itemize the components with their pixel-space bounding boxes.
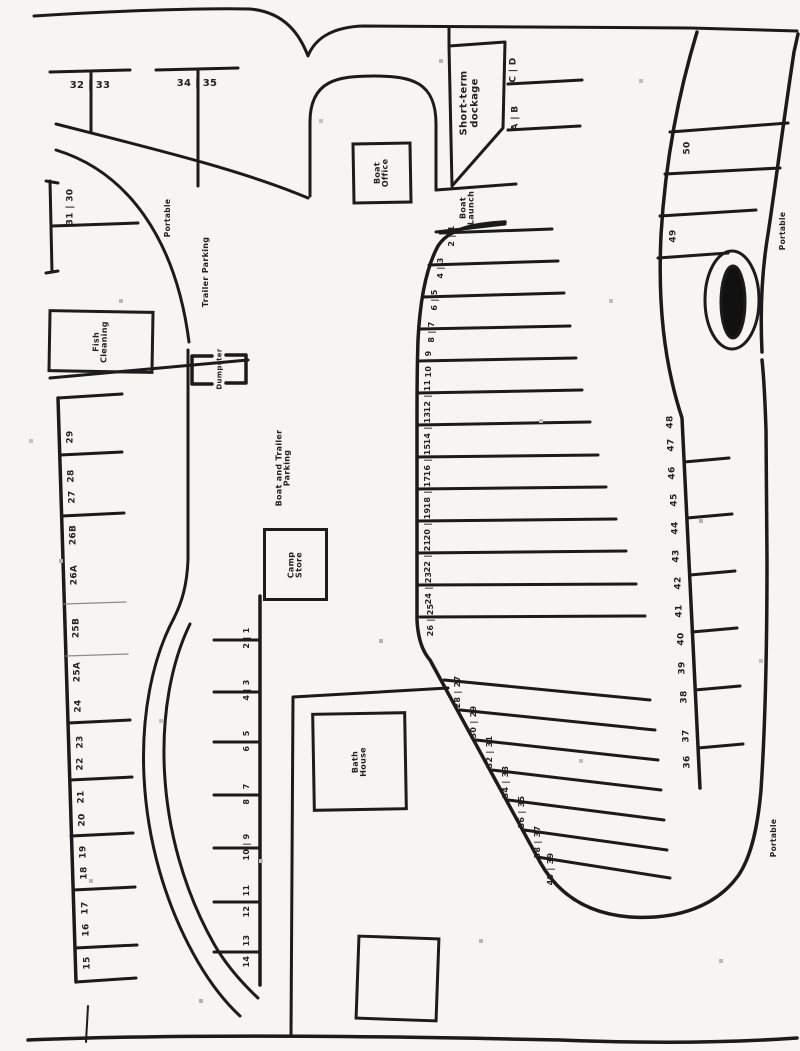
slip-label-left: 16	[82, 923, 91, 936]
slip-label-left: 24	[74, 699, 83, 712]
crescent-outer	[144, 618, 240, 1016]
finger-pier-west	[460, 710, 655, 730]
slip-label-west-dock: 24 | 23	[425, 572, 433, 605]
finger-pier-west	[508, 800, 664, 820]
camp-store-box: Camp Store	[263, 528, 328, 601]
finger-pier-left	[71, 833, 133, 836]
slip-label-east-top: 49	[669, 229, 678, 242]
finger-pier-east	[690, 571, 735, 575]
slip-label-east: 48	[666, 415, 675, 428]
finger-pier-eastTop	[665, 168, 780, 174]
slip-label-west-dock: 32 | 31	[486, 736, 494, 769]
outer-shoreline-upper	[761, 34, 798, 352]
finger-pier-left	[73, 887, 135, 890]
finger-pier-west	[417, 519, 616, 521]
slip-label-east: 46	[668, 466, 677, 479]
slip-label-west-dock: 22 | 21	[424, 540, 432, 573]
slip-label-left: 25B	[72, 618, 81, 638]
finger-pier-west	[429, 261, 558, 265]
finger-pier-eastTop	[660, 210, 756, 216]
finger-pier-west	[537, 857, 670, 878]
slip-label-left: 25A	[73, 662, 82, 682]
slip-label-left: 23	[76, 735, 85, 748]
portable-label-top-left: Portable	[164, 199, 172, 237]
boundary-bottom	[28, 1036, 797, 1042]
slip-label-east-top: 50	[683, 141, 692, 154]
slip-label-left: 29	[66, 430, 75, 443]
slip-label-left: 18	[80, 866, 89, 879]
slip-label-east: 41	[675, 604, 684, 617]
camp-store-label: Camp Store	[287, 547, 304, 583]
finger-pier-west	[417, 455, 598, 457]
portable-label-top-right: Portable	[779, 212, 787, 250]
dock-30-31-label: 31 | 30	[66, 189, 75, 226]
scanned-marina-map-page: Boat Office Fish Cleaning Camp Store Bat…	[0, 0, 800, 1051]
slip-label-west-dock: 10 | 9	[425, 351, 433, 378]
slip-label-short-term: C | D	[509, 57, 518, 82]
parking-divider	[174, 350, 188, 618]
bath-house-label: Bath House	[351, 743, 368, 779]
slip-label-left: 28	[67, 469, 76, 482]
slip-label-left: 20	[78, 813, 87, 826]
slip-label-west-dock: 26 | 25	[427, 604, 435, 637]
portable-label-bottom-right: Portable	[770, 819, 778, 857]
t-dock-2-label: 34 | 35	[177, 79, 218, 90]
slip-label-west-dock: 34 | 33	[502, 766, 510, 799]
west-dock-spine	[417, 222, 540, 862]
finger-pier-west	[418, 358, 576, 361]
dumpster-label: Dumpster	[216, 348, 223, 389]
boat-launch-label: Boat Launch	[460, 188, 477, 228]
slip-label-middle-dock: 6 | 5	[243, 730, 251, 751]
slip-label-east: 47	[667, 438, 676, 451]
slip-label-east: 45	[670, 493, 679, 506]
finger-pier-left	[64, 602, 126, 604]
finger-pier-left	[58, 394, 122, 398]
slip-label-west-dock: 18 | 17	[424, 476, 432, 509]
finger-pier-left	[62, 513, 124, 516]
boundary-top	[34, 9, 797, 56]
slip-label-west-dock: 2 | 1	[448, 225, 456, 246]
finger-pier-west	[417, 390, 582, 393]
slip-label-middle-dock: 8 | 7	[243, 783, 251, 804]
finger-pier-west	[423, 293, 564, 297]
basin-bottom-shore	[540, 360, 767, 917]
slip-label-west-dock: 36 | 35	[518, 796, 526, 829]
road-curve-upper	[56, 124, 308, 198]
fish-cleaning-box: Fish Cleaning	[47, 309, 154, 374]
bath-house-box: Bath House	[311, 711, 408, 812]
utility-box	[355, 935, 441, 1023]
finger-pier-east	[687, 514, 732, 518]
slip-label-left: 22	[76, 757, 85, 770]
finger-pier-west	[418, 584, 636, 585]
slip-label-short-term: A | B	[511, 106, 520, 131]
finger-pier-west	[492, 770, 661, 790]
slip-label-west-dock: 16 | 15	[424, 444, 432, 477]
slip-label-west-dock: 14 | 13	[424, 412, 432, 445]
finger-pier-west	[524, 830, 667, 850]
finger-pier-left	[68, 720, 130, 723]
slip-label-west-dock: 6 | 5	[431, 289, 439, 310]
finger-pier-west	[444, 680, 650, 700]
finger-pier-left	[60, 452, 122, 455]
finger-pier-west	[476, 740, 658, 760]
finger-pier-left	[76, 978, 136, 982]
slip-label-west-dock: 12 | 11	[424, 380, 432, 413]
turn-oval-fill	[721, 266, 745, 338]
slip-label-east: 44	[671, 521, 680, 534]
slip-label-east: 40	[677, 632, 686, 645]
slip-label-left: 27	[68, 490, 77, 503]
finger-pier-west	[417, 422, 590, 425]
finger-pier-west	[417, 487, 606, 489]
slip-label-east: 38	[680, 690, 689, 703]
slip-label-west-dock: 20 | 19	[424, 508, 432, 541]
slip-label-west-dock: 8 | 7	[428, 321, 436, 342]
boat-office-label: Boat Office	[373, 153, 390, 193]
slip-label-west-dock: 4 | 3	[437, 257, 445, 278]
slip-label-left: 15	[83, 956, 92, 969]
finger-pier-eastTop	[670, 123, 788, 132]
slip-label-left: 26A	[70, 565, 79, 585]
fish-cleaning-label: Fish Cleaning	[92, 317, 110, 365]
slip-label-middle-dock: 12 | 11	[243, 885, 251, 918]
slip-label-left: 21	[77, 790, 86, 803]
slip-label-west-dock: 30 | 29	[470, 706, 478, 739]
east-inner-line	[660, 32, 700, 788]
finger-pier-left	[75, 945, 137, 948]
finger-pier-east	[692, 628, 737, 632]
boat-office-box: Boat Office	[351, 141, 412, 204]
slip-label-middle-dock: 2 | 1	[243, 627, 251, 648]
dock-30-31	[46, 181, 138, 273]
finger-pier-left	[70, 777, 132, 780]
short-term-dockage-label: Short-term dockage	[460, 70, 481, 136]
slip-label-left: 17	[81, 901, 90, 914]
finger-pier-west	[420, 616, 645, 617]
left-row-spine	[58, 398, 76, 982]
slip-label-middle-dock: 14 | 13	[243, 935, 251, 968]
finger-pier-left	[66, 654, 128, 656]
slip-label-left: 26B	[69, 525, 78, 545]
slip-label-east: 37	[682, 729, 691, 742]
slip-label-west-dock: 38 | 37	[534, 826, 542, 859]
finger-pier-west	[417, 551, 626, 553]
short-term-finger-1	[508, 80, 582, 84]
finger-pier-east	[698, 744, 743, 748]
slip-label-east: 39	[678, 661, 687, 674]
slip-label-east: 43	[672, 549, 681, 562]
slip-label-middle-dock: 4 | 3	[243, 679, 251, 700]
slip-label-east: 42	[674, 576, 683, 589]
finger-pier-east	[695, 686, 740, 690]
slip-label-west-dock: 40 | 39	[547, 853, 555, 886]
scan-noise	[0, 0, 2, 2]
finger-pier-east	[684, 458, 729, 462]
t-dock-1-label: 32 | 33	[70, 81, 111, 92]
boat-trailer-parking-label: Boat and Trailer Parking	[276, 424, 293, 512]
slip-label-east: 36	[683, 755, 692, 768]
finger-pier-west	[420, 326, 570, 329]
slip-label-left: 19	[79, 845, 88, 858]
trailer-parking-label: Trailer Parking	[202, 237, 210, 308]
slip-label-west-dock: 28 | 27	[454, 676, 462, 709]
slip-label-middle-dock: 10 | 9	[243, 834, 251, 861]
